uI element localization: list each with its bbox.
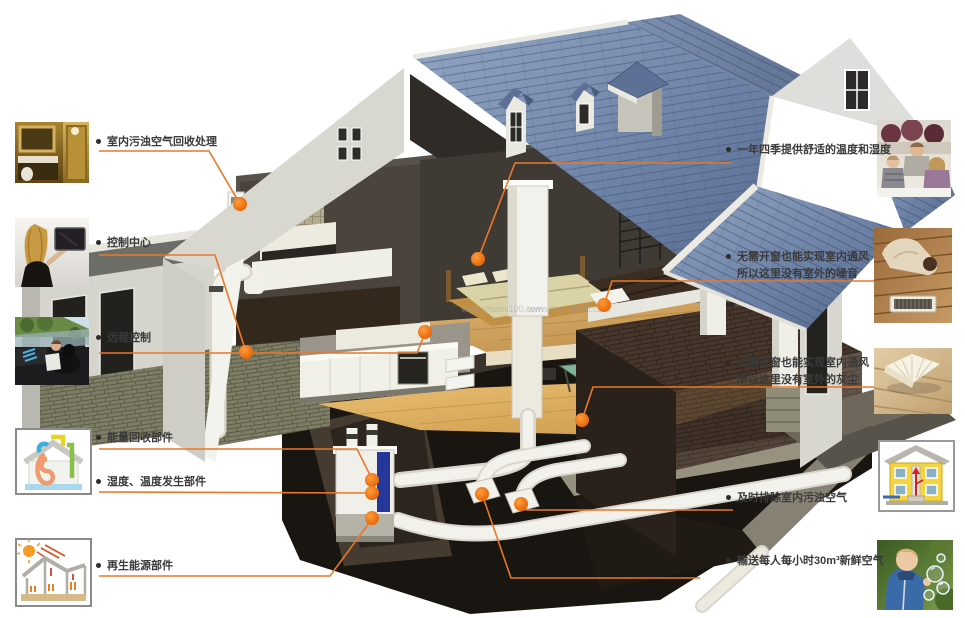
- renewable-energy-house-diagram: [15, 538, 92, 607]
- book-on-wood-floor-photo: [874, 348, 952, 414]
- house-cutaway-illustration: www.shushi100.com www.shushi100.com: [0, 0, 965, 618]
- callout-label: 能量回收部件: [107, 430, 173, 447]
- callout-indoor-air-recovery: 室内污浊空气回收处理: [96, 134, 217, 151]
- child-blowing-bubbles-photo: [877, 540, 953, 610]
- bathroom-interior-photo: [15, 122, 89, 183]
- callout-exhaust-dirty-air: 及时排除室内污浊空气: [726, 490, 847, 507]
- callout-label: 无需开窗也能实现室内通风 所以这里没有室外的灰尘: [737, 355, 869, 389]
- kitchen-oven: [398, 352, 428, 384]
- bullet-icon: [726, 558, 731, 563]
- callout-humidity-temperature: 湿度、温度发生部件: [96, 474, 206, 491]
- bullet-icon: [96, 335, 101, 340]
- callout-renewable-energy: 再生能源部件: [96, 558, 173, 575]
- bullet-icon: [726, 360, 731, 365]
- resting-on-wood-floor-vent-photo: [874, 228, 952, 323]
- callout-label: 湿度、温度发生部件: [107, 474, 206, 491]
- infographic-stage: www.shushi100.com www.shushi100.com: [0, 0, 965, 618]
- callout-label: 及时排除室内污浊空气: [737, 490, 847, 507]
- callout-no-outside-noise: 无需开窗也能实现室内通风 所以这里没有室外的噪音: [726, 249, 869, 283]
- bullet-icon: [96, 563, 101, 568]
- bullet-icon: [726, 254, 731, 259]
- bullet-icon: [96, 139, 101, 144]
- callout-remote-control: 远程控制: [96, 330, 151, 347]
- bullet-icon: [96, 240, 101, 245]
- callout-energy-recovery: 能量回收部件: [96, 430, 173, 447]
- callout-label: 一年四季提供舒适的温度和湿度: [737, 142, 891, 159]
- energy-recovery-unit-diagram: [15, 428, 92, 495]
- callout-label: 再生能源部件: [107, 558, 173, 575]
- callout-label: 输送每人每小时30m³新鲜空气: [737, 553, 884, 570]
- leader-humidity-temperature: [99, 492, 372, 493]
- bullet-icon: [96, 435, 101, 440]
- callout-label: 无需开窗也能实现室内通风 所以这里没有室外的噪音: [737, 249, 869, 283]
- callout-no-outside-dust: 无需开窗也能实现室内通风 所以这里没有室外的灰尘: [726, 355, 869, 389]
- callout-label: 室内污浊空气回收处理: [107, 134, 217, 151]
- bullet-icon: [726, 147, 731, 152]
- callout-fresh-air-volume: 输送每人每小时30m³新鲜空气: [726, 553, 884, 570]
- watermark: www.shushi100.com www.shushi100.com: [460, 304, 610, 314]
- leader-indoor-air-recovery: [99, 151, 240, 204]
- remote-control-driving-photo: [15, 317, 89, 385]
- control-center-touchscreen-photo: [15, 218, 89, 287]
- right-gable-window: [845, 70, 869, 110]
- house-exhaust-airflow-diagram: [878, 440, 955, 512]
- callout-label: 控制中心: [107, 235, 151, 252]
- callout-control-center: 控制中心: [96, 235, 151, 252]
- bullet-icon: [96, 479, 101, 484]
- bullet-icon: [726, 495, 731, 500]
- callout-label: 远程控制: [107, 330, 151, 347]
- callout-comfort-all-seasons: 一年四季提供舒适的温度和湿度: [726, 142, 891, 159]
